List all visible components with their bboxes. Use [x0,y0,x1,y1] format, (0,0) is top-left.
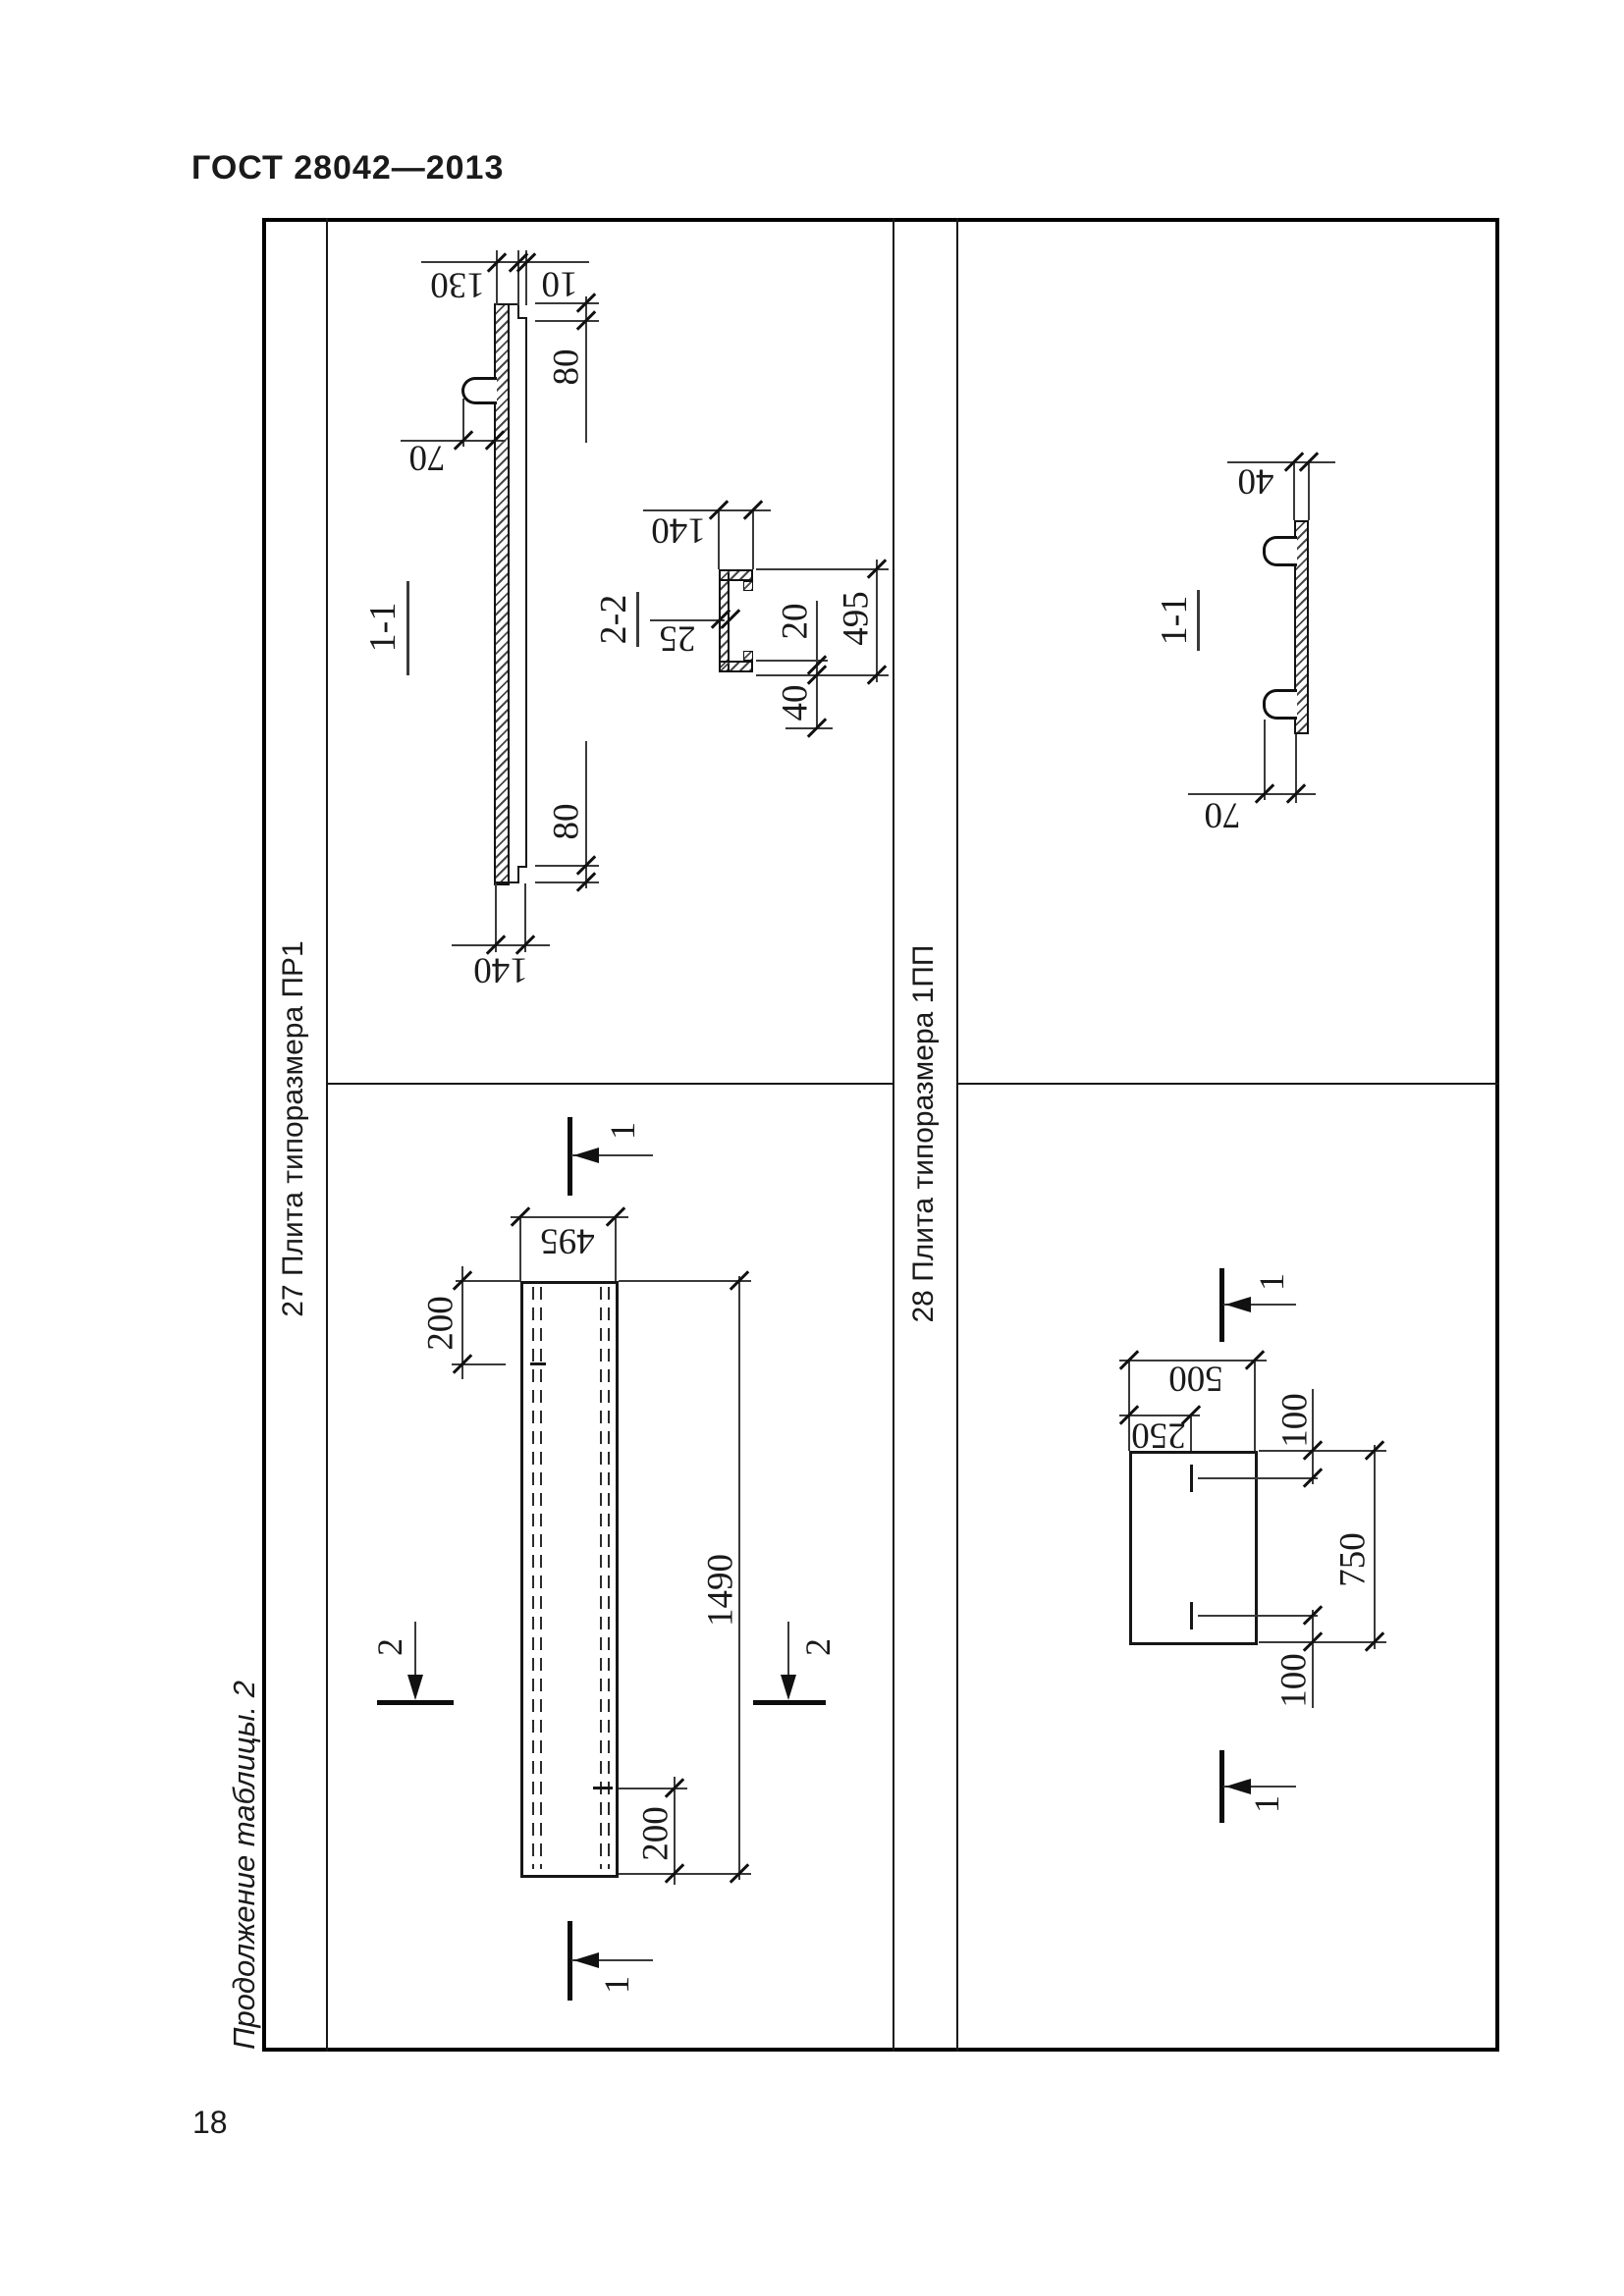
row27-cut-line-1-top [568,1117,572,1196]
extension-line [619,1873,751,1875]
view-arrow [407,1675,423,1700]
extension-line [535,865,599,867]
row28-lifting-loop-top [1263,536,1297,566]
leader-line [1198,1615,1318,1617]
row27-dim-200-bottom: 200 [635,1806,677,1861]
extension-line [756,568,889,570]
row27-dim-130: 130 [430,264,485,306]
row27-dim-70: 70 [409,437,446,479]
plan-dashed-line [600,1287,602,1869]
row28-marker-1-top: 1 [1251,1273,1292,1291]
document-page: ГОСТ 28042—2013 18 Продолжение таблицы. … [0,0,1624,2296]
table-border [262,218,1499,2052]
row27-dim-80-top: 80 [546,349,588,386]
extension-line [752,510,754,569]
extension-line [756,674,889,676]
row28-marker-1-bottom: 1 [1246,1795,1287,1813]
anchor-mark [1190,1465,1193,1492]
extension-line [1254,1361,1256,1451]
row27-channel-flange-bottom [719,661,753,672]
extension-line [519,1217,521,1281]
row27-dim-25: 25 [660,617,696,660]
row27-channel-tip-bottom [743,651,753,661]
page-number: 18 [192,2105,228,2141]
row28-dim-750: 750 [1332,1532,1375,1587]
row27-dim-1490: 1490 [700,1554,742,1627]
plate-outline [525,317,527,868]
extension-line [1308,462,1310,520]
plate-outline [494,881,519,883]
plan-dashed-line [608,1287,610,1869]
row27-marker-1-bottom: 1 [596,1976,637,1994]
row27-dim-200-top: 200 [420,1296,462,1351]
anchor-mark [593,1787,613,1789]
table-line-row-divider [893,218,894,2052]
extension-line [456,1280,520,1282]
row27-marker-2-right: 2 [797,1638,839,1656]
extension-line [615,1217,617,1281]
view-arrow [1225,1779,1251,1794]
extension-line [535,881,599,883]
view-arrow [573,1148,599,1163]
extension-line [535,302,599,304]
row28-section11-title: 1-1 [1153,596,1196,646]
row27-dim-140: 140 [651,509,706,552]
row27-section11-title-underline [406,581,409,675]
row28-dim-500: 500 [1168,1358,1223,1400]
row27-dim-495-section: 495 [836,591,878,646]
leader-line [1198,1477,1318,1479]
extension-line [718,510,720,569]
row28-lifting-loop-bottom [1263,689,1297,720]
row27-channel-flange-top [719,569,753,581]
row27-dim-10: 10 [542,263,578,305]
extension-line [1259,1641,1386,1643]
row27-section22-title-underline [636,592,639,647]
row27-dim-495-plan: 495 [540,1220,595,1262]
view-arrow [573,1952,599,1968]
plan-dashed-line [540,1287,542,1869]
row28-dim-70: 70 [1205,794,1241,836]
row27-dim-20: 20 [775,604,817,640]
anchor-mark [530,1362,546,1365]
row27-marker-1-top: 1 [602,1122,643,1140]
row28-dim-40: 40 [1238,460,1274,503]
row27-section11-title: 1-1 [361,603,405,653]
gost-header: ГОСТ 28042—2013 [191,149,504,187]
view-arrow [781,1675,796,1700]
row27-marker-2-left: 2 [369,1638,410,1656]
row27-cut-line-2-right [753,1700,826,1705]
row28-label: 28 Плита типоразмера 1ПП [907,945,941,1323]
extension-line [1259,1450,1386,1452]
table-line-label28 [956,218,958,2052]
row27-lifting-loop [461,377,497,404]
extension-line [785,727,833,729]
row28-section11-title-underline [1197,590,1200,651]
row28-dim-100-bottom: 100 [1273,1653,1316,1708]
anchor-mark [1190,1602,1193,1629]
extension-line [1293,462,1295,520]
row27-dim-40: 40 [775,685,817,721]
extension-line [619,1788,687,1789]
row27-dim-80-bottom: 80 [546,804,588,840]
row27-cut-line-2-left [377,1700,454,1705]
table-line-cell-divider-28 [956,1083,1499,1085]
row27-label: 27 Плита типоразмера ПР1 [277,940,310,1316]
table-line-cell-divider-27 [326,1083,893,1085]
dim-line [452,944,550,946]
row27-section22-title: 2-2 [592,595,635,645]
extension-line [1264,720,1266,800]
extension-line [535,320,599,322]
row27-channel-tip-top [743,581,753,591]
extension-line [1128,1361,1130,1451]
row28-dim-100-top: 100 [1274,1393,1317,1448]
row27-dim-140-bottom: 140 [473,949,528,991]
view-arrow [1225,1297,1251,1312]
table-line-label27 [326,218,328,2052]
plan-dashed-line [532,1287,534,1869]
extension-line [619,1280,751,1282]
table-continuation-note: Продолжение таблицы. 2 [227,1681,262,2050]
